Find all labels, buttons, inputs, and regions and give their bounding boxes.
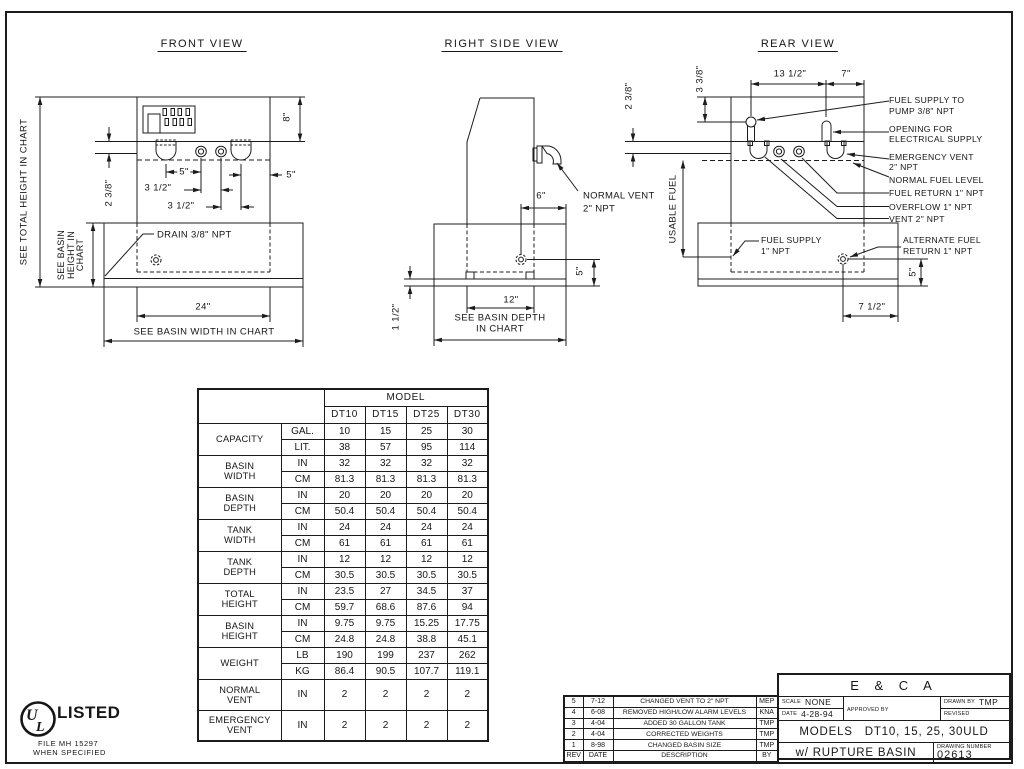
spec-value-cell: 15.25 [406,615,447,631]
front-dim-5-left: 5" [177,167,190,178]
rev-by-cell: MEP [756,696,778,707]
spec-unit-cell: CM [281,631,324,647]
rear-callout-fuel-supply-line2: 1" NPT [761,246,790,256]
front-basin-width-note: SEE BASIN WIDTH IN CHART [134,327,275,338]
spec-table-row: CAPACITYGAL.10152530 [198,423,488,439]
front-drain-callout: DRAIN 3/8" NPT [157,230,232,241]
spec-value-cell: 15 [365,423,406,439]
rev-by-cell: TMP [756,740,778,751]
revision-row: 18-98CHANGED BASIN SIZETMP [564,740,778,751]
ul-file-line: FILE MH 15297 [38,739,98,748]
spec-row-group-label: EMERGENCYVENT [198,710,281,741]
spec-table-row: EMERGENCYVENTIN2222 [198,710,488,741]
ul-monogram-l: L [35,720,45,735]
spec-table-row: TANKDEPTHIN12121212 [198,551,488,567]
spec-table-title: MODEL [324,389,488,406]
spec-value-cell: 61 [365,535,406,551]
spec-unit-cell: IN [281,710,324,741]
side-dim-12: 12" [503,295,518,306]
rear-callout-electrical-line2: ELECTRICAL SUPPLY [889,134,982,144]
spec-row-group-label: BASINDEPTH [198,487,281,519]
spec-value-cell: 119.1 [447,663,488,679]
spec-unit-cell: IN [281,551,324,567]
spec-value-cell: 17.75 [447,615,488,631]
rear-callout-alt-return-line1: ALTERNATE FUEL [903,235,981,245]
rev-by-cell: KNA [756,707,778,718]
group-label-line: BASIN [199,621,281,631]
front-basin-height-note: SEE BASIN HEIGHT IN CHART [57,230,86,280]
spec-value-cell: 114 [447,439,488,455]
spec-value-cell: 81.3 [365,471,406,487]
date-label: DATE [782,711,797,717]
rev-by-cell: TMP [756,718,778,729]
group-label-line: VENT [199,725,281,735]
rev-description-cell: CHANGED BASIN SIZE [613,740,756,751]
title-block-info-band: SCALE NONE DATE 4-28-94 APPROVED BY DRAW… [779,697,1009,721]
group-label-line: WEIGHT [199,658,281,668]
rear-callout-emergency-line2: 2" NPT [889,162,918,172]
revision-row: 46-08REMOVED HIGH/LOW ALARM LEVELSKNA [564,707,778,718]
group-label-line: BASIN [199,461,281,471]
drawn-revised-cell: DRAWN BY TMP REVISED [941,697,1009,720]
spec-unit-cell: CM [281,471,324,487]
rev-number-cell: REV [564,750,583,761]
rev-date-cell: DATE [583,750,613,761]
side-basin-depth-note-line1: SEE BASIN DEPTH [455,313,546,324]
rev-number-cell: 4 [564,707,583,718]
drawn-by-value: TMP [979,697,998,707]
drawing-number-value: 02613 [937,750,1009,761]
rev-date-cell: 4-04 [583,729,613,740]
spec-value-cell: 68.6 [365,599,406,615]
spec-row-group-label: TANKDEPTH [198,551,281,583]
spec-value-cell: 262 [447,647,488,663]
spec-value-cell: 2 [365,710,406,741]
spec-value-cell: 32 [365,455,406,471]
model-spec-table: MODELDT10DT15DT25DT30CAPACITYGAL.1015253… [197,388,489,742]
spec-table-row: TANKWIDTHIN24242424 [198,519,488,535]
rear-dim-5: 5" [908,267,919,276]
spec-value-cell: 2 [324,710,365,741]
spec-value-cell: 27 [365,583,406,599]
spec-row-group-label: NORMALVENT [198,679,281,710]
group-label-line: CAPACITY [199,434,281,444]
spec-column-header: DT30 [447,406,488,423]
drawing-sheet: FRONT VIEW RIGHT SIDE VIEW REAR VIEW SEE… [0,0,1024,769]
rev-date-cell: 7-12 [583,696,613,707]
spec-value-cell: 38.8 [406,631,447,647]
spec-value-cell: 9.75 [365,615,406,631]
rev-by-cell: TMP [756,729,778,740]
spec-value-cell: 2 [447,710,488,741]
spec-unit-cell: IN [281,679,324,710]
spec-value-cell: 50.4 [447,503,488,519]
spec-value-cell: 61 [406,535,447,551]
side-dim-5: 5" [575,266,586,275]
spec-value-cell: 20 [365,487,406,503]
spec-unit-cell: IN [281,615,324,631]
spec-value-cell: 81.3 [406,471,447,487]
rear-callout-fuel-return: FUEL RETURN 1" NPT [889,188,984,198]
spec-table-row: BASINWIDTHIN32323232 [198,455,488,471]
models-value: DT10, 15, 25, 30ULD [865,726,989,738]
models-row: MODELS DT10, 15, 25, 30ULD [779,721,1009,743]
spec-value-cell: 30 [447,423,488,439]
title-block-bottom-row: w/ RUPTURE BASIN DRAWING NUMBER 02613 [779,743,1009,763]
spec-value-cell: 59.7 [324,599,365,615]
front-dim-3-1-2-b: 3 1/2" [168,201,195,212]
spec-value-cell: 12 [447,551,488,567]
rear-callout-pump-line2: PUMP 3/8" NPT [889,106,955,116]
spec-value-cell: 30.5 [406,567,447,583]
spec-value-cell: 2 [365,679,406,710]
rear-callout-alt-return-line2: RETURN 1" NPT [903,246,973,256]
front-dim-8: 8" [282,112,293,121]
front-view-linework [35,97,305,347]
rev-description-cell: DESCRIPTION [613,750,756,761]
rear-dim-13-1-2: 13 1/2" [774,69,807,80]
spec-value-cell: 10 [324,423,365,439]
group-label-line: BASIN [199,493,281,503]
spec-value-cell: 94 [447,599,488,615]
spec-value-cell: 12 [324,551,365,567]
spec-unit-cell: CM [281,567,324,583]
spec-value-cell: 86.4 [324,663,365,679]
spec-value-cell: 81.3 [324,471,365,487]
date-value: 4-28-94 [801,709,833,719]
group-label-line: WIDTH [199,535,281,545]
spec-value-cell: 24.8 [324,631,365,647]
revised-label: REVISED [944,711,970,717]
rear-callout-fuel-level: NORMAL FUEL LEVEL [889,175,984,185]
spec-void-cell [198,389,324,406]
spec-value-cell: 61 [324,535,365,551]
spec-unit-cell: KG [281,663,324,679]
spec-table-row: WEIGHTLB190199237262 [198,647,488,663]
spec-value-cell: 38 [324,439,365,455]
spec-value-cell: 20 [406,487,447,503]
front-dim-24: 24" [195,302,210,313]
spec-value-cell: 237 [406,647,447,663]
spec-void-cell [198,406,324,423]
spec-value-cell: 23.5 [324,583,365,599]
rev-description-cell: REMOVED HIGH/LOW ALARM LEVELS [613,707,756,718]
spec-table-row: BASINDEPTHIN20202020 [198,487,488,503]
spec-unit-cell: CM [281,599,324,615]
spec-value-cell: 24 [447,519,488,535]
rear-callout-vent: VENT 2" NPT [889,214,945,224]
side-view-title: RIGHT SIDE VIEW [442,38,563,52]
spec-value-cell: 9.75 [324,615,365,631]
spec-unit-cell: IN [281,455,324,471]
spec-row-group-label: CAPACITY [198,423,281,455]
spec-table-row: BASINHEIGHTIN9.759.7515.2517.75 [198,615,488,631]
spec-value-cell: 25 [406,423,447,439]
rev-date-cell: 4-04 [583,718,613,729]
spec-unit-cell: IN [281,583,324,599]
spec-unit-cell: LB [281,647,324,663]
approved-by-label: APPROVED BY [847,707,889,713]
group-label-line: EMERGENCY [199,715,281,725]
approved-by-cell: APPROVED BY [844,697,941,720]
spec-unit-cell: LIT. [281,439,324,455]
rev-date-cell: 6-08 [583,707,613,718]
spec-value-cell: 20 [447,487,488,503]
spec-table-row: NORMALVENTIN2222 [198,679,488,710]
spec-value-cell: 12 [406,551,447,567]
side-dim-1-1-2: 1 1/2" [391,304,402,331]
group-label-line: HEIGHT [199,599,281,609]
group-label-line: DEPTH [199,567,281,577]
front-dim-3-1-2-a: 3 1/2" [145,183,172,194]
spec-table-row: TOTALHEIGHTIN23.52734.537 [198,583,488,599]
rear-callout-pump-line1: FUEL SUPPLY TO [889,95,964,105]
spec-value-cell: 45.1 [447,631,488,647]
spec-value-cell: 90.5 [365,663,406,679]
drawn-by-label: DRAWN BY [944,699,975,705]
revision-row: 34-04ADDED 30 GALLON TANKTMP [564,718,778,729]
front-total-height-note: SEE TOTAL HEIGHT IN CHART [19,119,30,266]
revision-table: 57-12CHANGED VENT TO 2" NPTMEP46-08REMOV… [563,695,779,763]
spec-value-cell: 81.3 [447,471,488,487]
scale-value: NONE [805,697,831,707]
spec-value-cell: 95 [406,439,447,455]
group-label-line: NORMAL [199,685,281,695]
revision-row: 57-12CHANGED VENT TO 2" NPTMEP [564,696,778,707]
spec-row-group-label: BASINHEIGHT [198,615,281,647]
spec-row-group-label: BASINWIDTH [198,455,281,487]
spec-value-cell: 30.5 [365,567,406,583]
models-label: MODELS [799,726,852,738]
side-dim-6: 6" [536,191,545,202]
spec-unit-cell: GAL. [281,423,324,439]
rev-number-cell: 2 [564,729,583,740]
spec-row-group-label: TOTALHEIGHT [198,583,281,615]
rear-dim-7-1-2: 7 1/2" [859,302,886,313]
rear-view-title: REAR VIEW [758,38,838,52]
spec-row-group-label: WEIGHT [198,647,281,679]
spec-value-cell: 20 [324,487,365,503]
spec-column-header: DT25 [406,406,447,423]
spec-unit-cell: CM [281,535,324,551]
spec-value-cell: 107.7 [406,663,447,679]
rev-description-cell: CHANGED VENT TO 2" NPT [613,696,756,707]
rear-usable-fuel-label: USABLE FUEL [668,175,679,244]
side-view-linework [404,98,600,346]
rear-dim-7: 7" [841,69,850,80]
group-label-line: TANK [199,557,281,567]
rear-dim-2-3-8: 2 3/8" [624,83,635,110]
group-label-line: DEPTH [199,503,281,513]
revision-header-row: REVDATEDESCRIPTIONBY [564,750,778,761]
rear-callout-emergency-line1: EMERGENCY VENT [889,152,974,162]
spec-value-cell: 37 [447,583,488,599]
rear-callout-electrical-line1: OPENING FOR [889,124,952,134]
spec-value-cell: 30.5 [324,567,365,583]
revision-row: 24-04CORRECTED WEIGHTSTMP [564,729,778,740]
spec-value-cell: 190 [324,647,365,663]
group-label-line: WIDTH [199,471,281,481]
spec-value-cell: 24 [406,519,447,535]
drawing-number-cell: DRAWING NUMBER 02613 [934,743,1009,763]
company-name: E & C A [779,675,1009,697]
spec-value-cell: 2 [324,679,365,710]
group-label-line: HEIGHT [199,631,281,641]
spec-value-cell: 2 [406,710,447,741]
group-label-line: VENT [199,695,281,705]
rev-date-cell: 8-98 [583,740,613,751]
spec-value-cell: 24 [365,519,406,535]
rear-callout-overflow: OVERFLOW 1" NPT [889,202,972,212]
scale-date-cell: SCALE NONE DATE 4-28-94 [779,697,844,720]
scale-label: SCALE [782,699,801,705]
side-normal-vent-callout-line1: NORMAL VENT [583,191,655,202]
rev-number-cell: 5 [564,696,583,707]
spec-column-header: DT10 [324,406,365,423]
rev-number-cell: 1 [564,740,583,751]
spec-value-cell: 61 [447,535,488,551]
rear-dim-3-3-8: 3 3/8" [695,66,706,93]
side-normal-vent-callout-line2: 2" NPT [583,203,615,214]
spec-value-cell: 50.4 [324,503,365,519]
spec-value-cell: 2 [406,679,447,710]
front-dim-5-right: 5" [286,170,295,181]
spec-column-header: DT15 [365,406,406,423]
spec-value-cell: 12 [365,551,406,567]
spec-value-cell: 50.4 [406,503,447,519]
spec-row-group-label: TANKWIDTH [198,519,281,551]
spec-value-cell: 32 [447,455,488,471]
spec-value-cell: 199 [365,647,406,663]
spec-value-cell: 32 [324,455,365,471]
spec-value-cell: 57 [365,439,406,455]
ul-when-line: WHEN SPECIFIED [33,748,106,757]
rev-number-cell: 3 [564,718,583,729]
spec-unit-cell: IN [281,519,324,535]
ul-listed-text: LISTED [57,703,120,723]
group-label-line: TANK [199,525,281,535]
rev-by-cell: BY [756,750,778,761]
rear-callout-fuel-supply-line1: FUEL SUPPLY [761,235,822,245]
ul-logo-icon: U L [19,700,59,740]
spec-value-cell: 87.6 [406,599,447,615]
spec-unit-cell: CM [281,503,324,519]
title-block: E & C A SCALE NONE DATE 4-28-94 APPROVED… [777,673,1011,760]
spec-value-cell: 2 [447,679,488,710]
side-basin-depth-note-line2: IN CHART [476,324,524,335]
spec-value-cell: 32 [406,455,447,471]
spec-unit-cell: IN [281,487,324,503]
spec-value-cell: 24.8 [365,631,406,647]
spec-value-cell: 24 [324,519,365,535]
note-line: CHART [76,230,86,280]
rev-description-cell: CORRECTED WEIGHTS [613,729,756,740]
front-view-title: FRONT VIEW [158,38,247,52]
front-dim-2-3-8: 2 3/8" [104,180,115,207]
spec-value-cell: 50.4 [365,503,406,519]
drawing-linework [0,0,1024,769]
group-label-line: TOTAL [199,589,281,599]
drawing-subtitle: w/ RUPTURE BASIN [779,743,934,763]
spec-value-cell: 30.5 [447,567,488,583]
spec-value-cell: 34.5 [406,583,447,599]
rev-description-cell: ADDED 30 GALLON TANK [613,718,756,729]
